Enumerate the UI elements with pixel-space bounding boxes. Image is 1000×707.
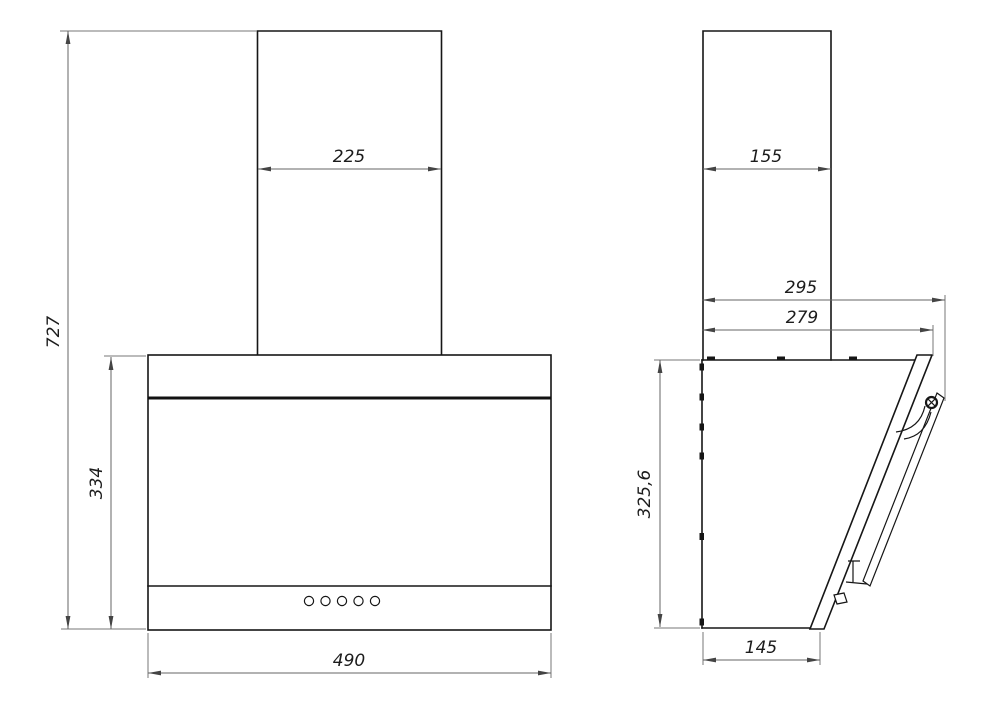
mounting-tab	[700, 453, 705, 460]
dim-label-panel-depth: 279	[786, 308, 818, 328]
dim-label-side-body-height: 325,6	[635, 469, 655, 518]
mounting-tab	[700, 364, 705, 371]
drawing-canvas: 727 225 334 490 155 295 279 325,6 1	[0, 0, 1000, 707]
dim-label-overall-depth: 295	[785, 278, 817, 298]
control-button	[304, 596, 313, 605]
technical-drawing: 727 225 334 490 155 295 279 325,6 1	[0, 0, 1000, 707]
control-button	[337, 596, 346, 605]
mounting-tab	[700, 394, 705, 401]
mounting-tab	[700, 533, 705, 540]
dim-label-body-width: 490	[333, 651, 365, 671]
front-hood-body	[148, 355, 551, 630]
control-button	[370, 596, 379, 605]
dim-label-chimney-width: 225	[333, 147, 365, 167]
mounting-tab	[700, 424, 705, 431]
front-chimney-outline	[258, 31, 442, 355]
dim-label-total-height: 727	[44, 316, 64, 349]
control-button	[354, 596, 363, 605]
mounting-tab	[777, 357, 785, 361]
control-button	[321, 596, 330, 605]
mounting-tab	[849, 357, 857, 361]
front-view	[148, 31, 551, 630]
side-tilted-front-panel	[810, 355, 932, 629]
mounting-tab	[707, 357, 715, 361]
mounting-tab	[700, 619, 705, 626]
dim-label-bottom-depth: 145	[745, 638, 777, 658]
panel-catch-tab	[834, 593, 847, 604]
dim-label-body-height: 334	[87, 467, 107, 499]
dim-label-chimney-depth: 155	[750, 147, 782, 167]
